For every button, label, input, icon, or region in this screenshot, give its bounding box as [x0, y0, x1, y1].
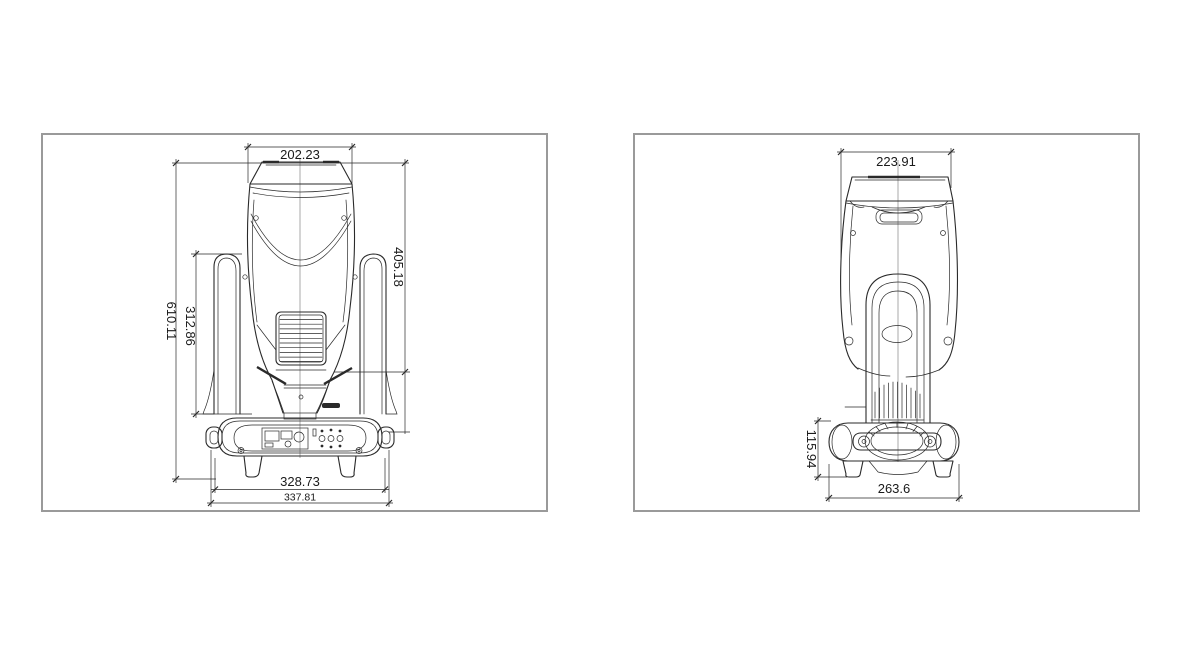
side-fixture-head [841, 177, 958, 377]
base-endcap-right [936, 425, 956, 459]
base-usb-slot [313, 429, 316, 436]
base-foot-right [933, 461, 953, 477]
base-display [262, 428, 308, 449]
head-knob-icon [845, 337, 853, 345]
front-yoke-arm-left [203, 254, 240, 414]
dim-label-front-total-height: 610.11 [164, 302, 179, 341]
side-view-svg: 223.91 115.94 263.6 [635, 135, 1138, 510]
dim-front-total-height: 610.11 [164, 159, 409, 483]
front-vent-grille [276, 312, 326, 365]
base-center-wedge [869, 461, 927, 475]
head-knob-icon [944, 337, 952, 345]
side-yoke-arm [845, 274, 930, 423]
dim-front-base-width: 328.73 [211, 458, 389, 493]
dim-label-front-yoke-height: 312.86 [183, 306, 198, 346]
side-view-panel: 223.91 115.94 263.6 [633, 133, 1140, 512]
head-screw-icon [299, 395, 303, 399]
yoke-handle-cutout [882, 326, 912, 343]
head-screw-icon [342, 216, 347, 221]
head-screw-icon [243, 275, 247, 279]
base-foot-left [843, 461, 863, 477]
head-screw-icon [941, 231, 946, 236]
front-view-panel: 202.23 610.11 312.86 405.18 [41, 133, 548, 512]
front-view-svg: 202.23 610.11 312.86 405.18 [43, 135, 546, 510]
front-view-drawing: 202.23 610.11 312.86 405.18 [164, 143, 410, 507]
dim-side-base-height: 115.94 [804, 417, 847, 481]
dim-front-yoke-height: 312.86 [183, 250, 252, 418]
dim-label-side-base-depth: 263.6 [878, 481, 911, 496]
base-screw-icon [356, 448, 362, 454]
dim-label-side-base-height: 115.94 [804, 430, 819, 469]
dim-label-side-top-width: 223.91 [876, 154, 916, 169]
base-buttons [319, 429, 343, 449]
technical-drawing-sheet: 202.23 610.11 312.86 405.18 [0, 0, 1181, 649]
base-endcap-left [832, 425, 852, 459]
dim-label-front-overall-width: 337.81 [284, 492, 316, 504]
head-screw-icon [254, 216, 259, 221]
dim-label-front-top-width: 202.23 [280, 147, 320, 162]
base-foot-left [244, 456, 262, 477]
dim-label-front-head-height: 405.18 [391, 247, 406, 287]
base-screw-icon [238, 448, 244, 454]
handle-screw-icon [859, 436, 870, 447]
handle-screw-icon [925, 436, 936, 447]
head-slot [322, 403, 340, 408]
dim-front-head-height: 405.18 [334, 159, 410, 434]
side-base [829, 422, 959, 477]
dim-label-front-base-width: 328.73 [280, 474, 320, 489]
base-foot-right [338, 456, 356, 477]
head-screw-icon [851, 231, 856, 236]
dim-side-base-depth: 263.6 [825, 464, 963, 502]
side-view-drawing: 223.91 115.94 263.6 [804, 148, 963, 502]
dim-side-top-width: 223.91 [837, 148, 955, 258]
